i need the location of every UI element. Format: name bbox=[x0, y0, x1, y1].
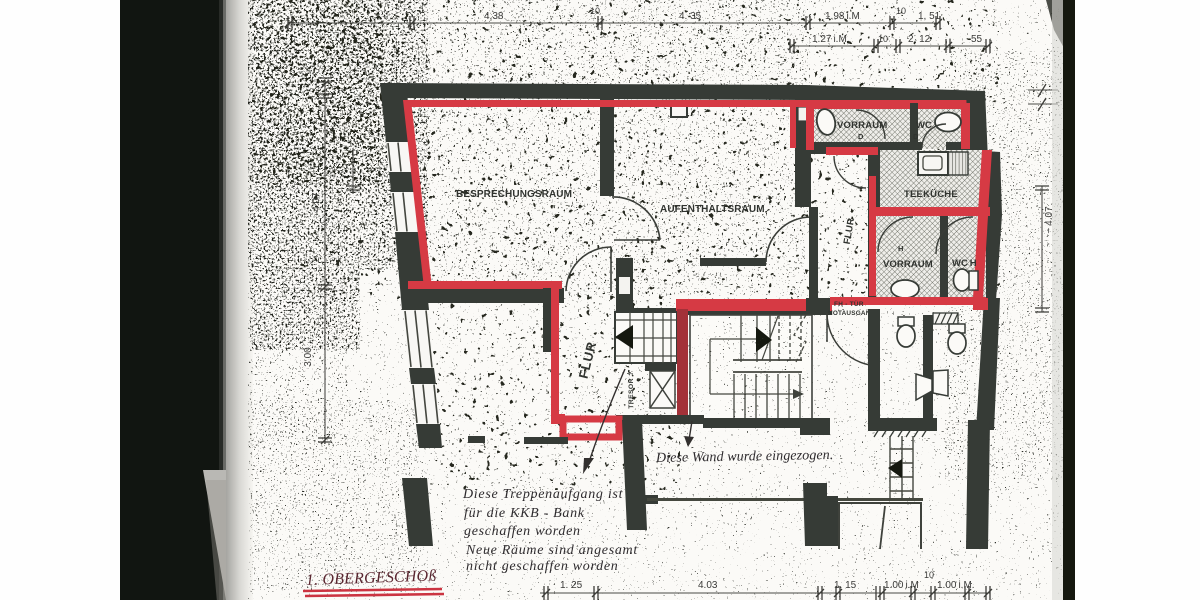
svg-text:3.00: 3.00 bbox=[303, 347, 314, 367]
svg-text:Diese Treppenaufgang ist: Diese Treppenaufgang ist bbox=[462, 487, 624, 502]
svg-text:TRESOR ?: TRESOR ? bbox=[628, 371, 635, 409]
svg-text:WC: WC bbox=[916, 120, 932, 131]
svg-text:H: H bbox=[898, 244, 903, 253]
svg-text:Diese Wand wurde eingezogen.: Diese Wand wurde eingezogen. bbox=[655, 448, 834, 466]
svg-text:55: 55 bbox=[971, 34, 983, 45]
svg-text:Neue Räume sind angesamt: Neue Räume sind angesamt bbox=[465, 543, 638, 558]
svg-text:10: 10 bbox=[590, 6, 600, 16]
svg-text:4.07: 4.07 bbox=[311, 192, 322, 212]
svg-text:4.38: 4.38 bbox=[484, 11, 504, 22]
svg-text:10: 10 bbox=[878, 34, 888, 44]
svg-text:4. 35: 4. 35 bbox=[679, 11, 702, 22]
svg-text:geschaffen worden: geschaffen worden bbox=[464, 524, 581, 539]
svg-text:VORRAUM: VORRAUM bbox=[883, 259, 933, 270]
svg-text:1.00 i.M: 1.00 i.M bbox=[884, 580, 919, 591]
svg-text:1.00 i.M.: 1.00 i.M. bbox=[937, 580, 975, 591]
svg-text:für die KKB - Bank: für die KKB - Bank bbox=[464, 506, 585, 521]
svg-text:WC H: WC H bbox=[952, 258, 977, 269]
svg-text:1. 15: 1. 15 bbox=[834, 580, 857, 591]
svg-text:TEEKÜCHE: TEEKÜCHE bbox=[904, 189, 958, 200]
svg-text:1.27 i.M.: 1.27 i.M. bbox=[812, 34, 850, 45]
svg-text:1, 51: 1, 51 bbox=[918, 11, 941, 22]
svg-text:10: 10 bbox=[896, 6, 906, 16]
svg-text:BESPRECHUNGSRAUM: BESPRECHUNGSRAUM bbox=[456, 189, 572, 200]
svg-text:FH - TÜR: FH - TÜR bbox=[834, 299, 864, 308]
svg-text:AUFENTHALTSRAUM: AUFENTHALTSRAUM bbox=[660, 204, 765, 215]
svg-text:1. 25: 1. 25 bbox=[560, 580, 583, 591]
svg-text:D: D bbox=[913, 132, 919, 141]
svg-text:VORRAUM: VORRAUM bbox=[837, 120, 887, 131]
svg-text:1.98 i.M: 1.98 i.M bbox=[825, 11, 860, 22]
svg-text:4.03: 4.03 bbox=[698, 580, 718, 591]
svg-text:2. 12: 2. 12 bbox=[908, 34, 931, 45]
svg-text:10: 10 bbox=[924, 570, 934, 580]
svg-text:D: D bbox=[858, 132, 864, 141]
svg-text:nicht geschaffen worden: nicht geschaffen worden bbox=[466, 559, 618, 574]
